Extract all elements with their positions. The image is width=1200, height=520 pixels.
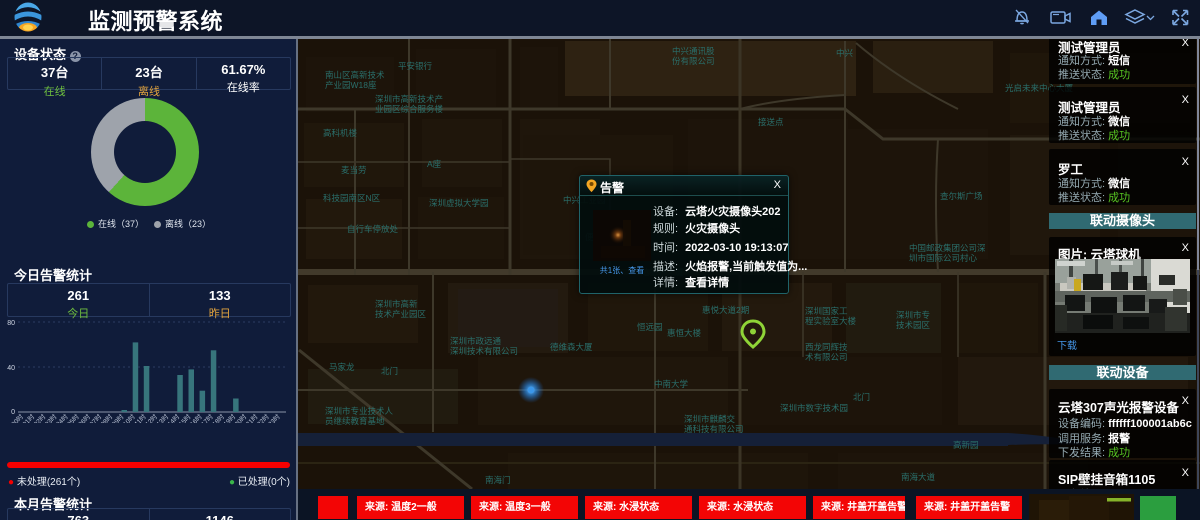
svg-text:中国邮政集团公司深: 中国邮政集团公司深 [909, 243, 986, 253]
svg-text:北门: 北门 [853, 392, 870, 402]
svg-text:深圳市专: 深圳市专 [896, 310, 930, 320]
svg-text:术有限公司: 术有限公司 [805, 352, 848, 362]
svg-text:中南大学: 中南大学 [654, 379, 689, 389]
svg-text:南山区高新技术: 南山区高新技术 [325, 70, 385, 80]
svg-text:技术园区: 技术园区 [896, 320, 931, 330]
svg-text:份有限公司: 份有限公司 [672, 56, 715, 66]
svg-text:北门: 北门 [381, 366, 398, 376]
svg-text:中兴: 中兴 [836, 48, 854, 58]
svg-text:深圳国家工: 深圳国家工 [805, 306, 848, 316]
svg-text:0: 0 [11, 409, 15, 416]
svg-text:德维森大厦: 德维森大厦 [550, 342, 593, 352]
svg-text:圳市国际公司村心: 圳市国际公司村心 [909, 253, 978, 263]
svg-text:西龙同辉技: 西龙同辉技 [805, 342, 848, 352]
svg-text:程实验室大楼: 程实验室大楼 [805, 316, 857, 326]
svg-text:深圳市高新技术产: 深圳市高新技术产 [375, 94, 443, 104]
svg-text:深圳市政远通: 深圳市政远通 [450, 336, 502, 346]
svg-text:业园区综合服务楼: 业园区综合服务楼 [375, 104, 444, 114]
svg-text:查尔斯广场: 查尔斯广场 [940, 191, 983, 201]
svg-text:自行车停放处: 自行车停放处 [347, 224, 399, 234]
svg-text:惠恒大楼: 惠恒大楼 [667, 328, 702, 338]
svg-text:马家龙: 马家龙 [329, 362, 355, 372]
svg-text:深圳技术有限公司: 深圳技术有限公司 [450, 346, 518, 356]
svg-text:深圳市麒麟交: 深圳市麒麟交 [684, 414, 736, 424]
svg-text:高科机楼: 高科机楼 [323, 128, 358, 138]
svg-text:平安银行: 平安银行 [398, 61, 433, 71]
svg-text:40: 40 [7, 365, 15, 372]
svg-text:南海门: 南海门 [485, 475, 511, 485]
svg-text:80: 80 [7, 320, 15, 327]
svg-text:中兴通讯股: 中兴通讯股 [672, 46, 715, 56]
svg-text:高新园: 高新园 [953, 440, 979, 450]
svg-text:产业园W18座: 产业园W18座 [325, 80, 377, 90]
svg-text:深圳市专业技术人: 深圳市专业技术人 [325, 406, 394, 416]
svg-text:麦当劳: 麦当劳 [341, 165, 367, 175]
svg-text:深圳市高新: 深圳市高新 [375, 299, 418, 309]
svg-text:惠悦大道2期: 惠悦大道2期 [702, 305, 749, 315]
svg-text:南海大道: 南海大道 [901, 472, 936, 482]
svg-text:员继续教育基地: 员继续教育基地 [325, 416, 385, 426]
svg-text:A座: A座 [427, 159, 442, 169]
svg-text:深圳市数字技术园: 深圳市数字技术园 [780, 403, 848, 413]
svg-text:恒远园: 恒远园 [637, 322, 663, 332]
svg-text:技术产业园区: 技术产业园区 [375, 309, 427, 319]
svg-text:科技园南区N区: 科技园南区N区 [323, 193, 381, 203]
svg-text:通科技有限公司: 通科技有限公司 [684, 424, 744, 434]
svg-text:接送点: 接送点 [758, 117, 784, 127]
svg-text:深圳虚拟大学园: 深圳虚拟大学园 [429, 198, 489, 208]
